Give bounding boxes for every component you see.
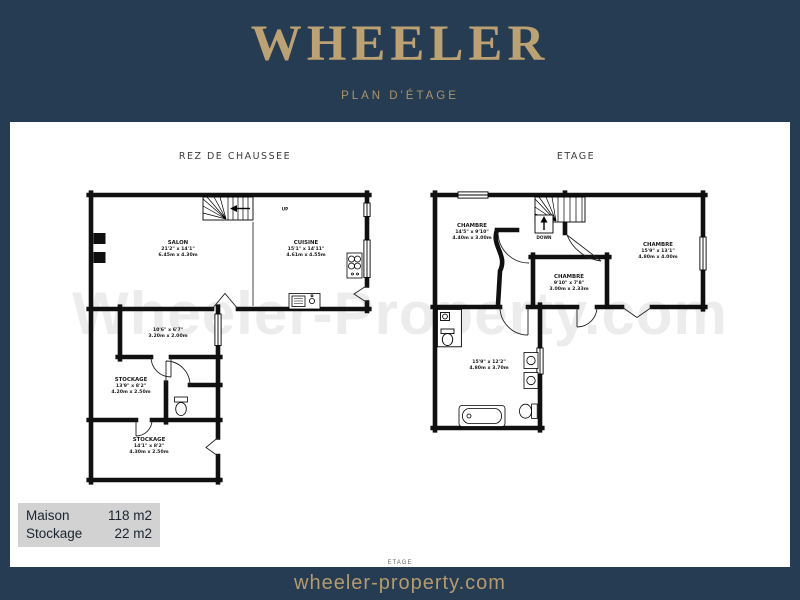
svg-text:13'9" x 8'2": 13'9" x 8'2" <box>116 383 146 389</box>
svg-text:15'1" x 14'11": 15'1" x 14'11" <box>288 246 325 252</box>
room-label-chambre-3: CHAMBRE 9'10" x 7'8" 3.00m x 2.33m <box>549 274 588 292</box>
footer-url: wheeler-property.com <box>294 572 506 594</box>
svg-text:3.20m x 2.00m: 3.20m x 2.00m <box>148 333 187 339</box>
svg-text:14'1" x 8'2": 14'1" x 8'2" <box>134 443 164 449</box>
room-label-stockage-2: STOCKAGE 14'1" x 8'2" 4.30m x 2.50m <box>129 437 168 455</box>
svg-text:4.80m x 3.70m: 4.80m x 3.70m <box>469 365 508 371</box>
svg-text:4.20m x 2.50m: 4.20m x 2.50m <box>111 389 150 395</box>
ground-floor-plan: REZ DE CHAUSSEE UP <box>89 151 370 482</box>
svg-text:10'6" x 6'7": 10'6" x 6'7" <box>153 327 183 333</box>
svg-text:4.61m x 4.55m: 4.61m x 4.55m <box>286 252 325 258</box>
room-label-hall: 10'6" x 6'7" 3.20m x 2.00m <box>148 327 187 339</box>
upper-floor-plan: ETAGE DOWN <box>433 151 706 430</box>
room-label-chambre-2: CHAMBRE 15'9" x 13'1" 4.80m x 4.00m <box>638 242 677 260</box>
room-label-cuisine: CUISINE 15'1" x 14'11" 4.61m x 4.55m <box>286 240 325 258</box>
svg-text:STOCKAGE: STOCKAGE <box>133 437 166 443</box>
svg-text:SALON: SALON <box>168 240 189 246</box>
svg-text:9'10" x 7'8": 9'10" x 7'8" <box>554 280 584 286</box>
legend-label: Maison <box>26 507 70 525</box>
legend-row-maison: Maison 118 m2 <box>26 507 152 525</box>
toilet-icon <box>520 404 538 418</box>
vanity-sink-icon <box>524 353 538 369</box>
svg-text:CUISINE: CUISINE <box>294 240 319 246</box>
plan-subtitle: PLAN D'ÉTAGE <box>0 90 800 102</box>
cropped-etage-label: ETAGE <box>0 560 800 566</box>
stove-icon <box>347 253 362 278</box>
legend-row-stockage: Stockage 22 m2 <box>26 525 152 543</box>
legend-value: 22 m2 <box>114 525 152 543</box>
vanity-sink-icon-2 <box>524 373 538 389</box>
svg-text:CHAMBRE: CHAMBRE <box>457 223 487 229</box>
room-label-salon: SALON 21'2" x 14'1" 6.45m x 4.30m <box>158 240 197 258</box>
page-footer: wheeler-property.com <box>0 567 800 600</box>
area-legend: Maison 118 m2 Stockage 22 m2 <box>18 503 160 547</box>
room-label-bathroom: 15'9" x 12'2" 4.80m x 3.70m <box>469 359 508 371</box>
fireplace-blocks <box>94 233 106 263</box>
svg-text:CHAMBRE: CHAMBRE <box>554 274 584 280</box>
svg-text:14'5" x 9'10": 14'5" x 9'10" <box>455 229 489 235</box>
closet-toilet-icon <box>441 329 454 346</box>
svg-text:3.00m x 2.33m: 3.00m x 2.33m <box>549 286 588 292</box>
svg-text:4.80m x 4.00m: 4.80m x 4.00m <box>638 254 677 260</box>
legend-label: Stockage <box>26 525 82 543</box>
svg-text:15'9" x 13'1": 15'9" x 13'1" <box>641 248 675 254</box>
wc-toilet-icon <box>175 397 188 416</box>
svg-text:4.30m x 2.50m: 4.30m x 2.50m <box>129 449 168 455</box>
toilet-closet <box>437 309 461 346</box>
legend-value: 118 m2 <box>108 507 152 525</box>
stairs-down-label: DOWN <box>536 235 552 240</box>
brand-title: WHEELER <box>0 0 800 73</box>
ground-stairs: UP <box>203 197 288 220</box>
bathtub-icon <box>459 406 505 427</box>
svg-text:15'9" x 12'2": 15'9" x 12'2" <box>472 359 506 365</box>
svg-text:4.40m x 3.00m: 4.40m x 3.00m <box>452 235 491 241</box>
stairs-up-label: UP <box>282 207 288 212</box>
page-header: WHEELER PLAN D'ÉTAGE <box>0 0 800 122</box>
svg-text:STOCKAGE: STOCKAGE <box>115 377 148 383</box>
svg-text:CHAMBRE: CHAMBRE <box>643 242 673 248</box>
room-label-chambre-1: CHAMBRE 14'5" x 9'10" 4.40m x 3.00m <box>452 223 491 241</box>
room-label-stockage-1: STOCKAGE 13'9" x 8'2" 4.20m x 2.50m <box>111 377 150 395</box>
svg-text:21'2" x 14'1": 21'2" x 14'1" <box>161 246 195 252</box>
upper-floor-title: ETAGE <box>557 151 595 162</box>
ground-floor-title: REZ DE CHAUSSEE <box>179 151 291 162</box>
upper-stairs: DOWN <box>535 197 585 240</box>
ground-floor-walls <box>89 193 370 483</box>
kitchen-sink-icon <box>289 294 320 310</box>
closet-sink-icon <box>441 313 450 321</box>
svg-text:6.45m x 4.30m: 6.45m x 4.30m <box>158 252 197 258</box>
